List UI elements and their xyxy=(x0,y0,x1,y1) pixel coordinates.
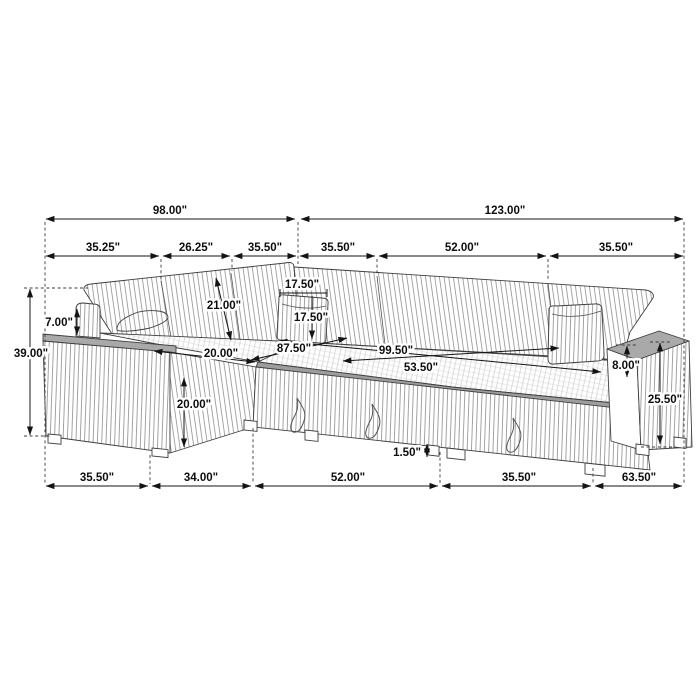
dim-label-63-50: 63.50" xyxy=(622,472,656,484)
dim-label-35-50-c: 35.50" xyxy=(599,242,633,254)
dim-label-7: 7.00" xyxy=(45,317,73,329)
sofa-foot xyxy=(447,448,465,460)
dim-label-35-50-b: 35.50" xyxy=(321,242,355,254)
dim-label-39: 39.00" xyxy=(14,348,48,360)
dim-label-99-50: 99.50" xyxy=(379,345,413,357)
dim-label-35-50-bottom-a: 35.50" xyxy=(80,472,114,484)
sofa-illustration xyxy=(43,263,692,477)
sofa-foot xyxy=(152,448,168,458)
dim-label-8: 8.00" xyxy=(612,360,640,372)
dim-label-17-50-h: 17.50" xyxy=(294,312,328,324)
dim-label-20-width: 20.00" xyxy=(204,348,238,360)
dim-label-26-25: 26.25" xyxy=(179,242,213,254)
dim-label-35-50-bottom-b: 35.50" xyxy=(502,472,536,484)
dim-label-25-50: 25.50" xyxy=(648,394,682,406)
dim-label-1-50: 1.50" xyxy=(393,447,421,459)
dim-label-87-50: 87.50" xyxy=(277,343,311,355)
dim-label-35-50-a: 35.50" xyxy=(248,242,282,254)
dim-label-35-25: 35.25" xyxy=(86,242,120,254)
chaise-front-face xyxy=(43,341,170,453)
dim-label-overall-98: 98.00" xyxy=(153,205,187,217)
sofa-foot xyxy=(48,434,61,444)
backrest-left-wing xyxy=(84,263,300,343)
armrest-left xyxy=(76,303,100,338)
dim-label-21: 21.00" xyxy=(207,300,241,312)
dimension-diagram-page: 98.00" 123.00" 35.25" 26.25" 35.50" 35.5… xyxy=(0,0,700,700)
sofa-dimension-diagram: 98.00" 123.00" 35.25" 26.25" 35.50" 35.5… xyxy=(0,0,700,700)
dim-label-52: 52.00" xyxy=(445,242,479,254)
dim-label-34: 34.00" xyxy=(184,472,218,484)
dim-label-52-bottom: 52.00" xyxy=(331,472,365,484)
dim-label-53-50: 53.50" xyxy=(404,362,438,374)
sofa-foot xyxy=(636,444,649,456)
sofa-foot xyxy=(244,420,257,431)
sofa-foot xyxy=(585,463,605,476)
sofa-foot xyxy=(428,445,439,456)
sofa-foot xyxy=(305,430,318,441)
dim-label-20-depth: 20.00" xyxy=(177,399,211,411)
dim-label-17-50-w: 17.50" xyxy=(285,279,319,291)
dim-label-overall-123: 123.00" xyxy=(485,205,526,217)
